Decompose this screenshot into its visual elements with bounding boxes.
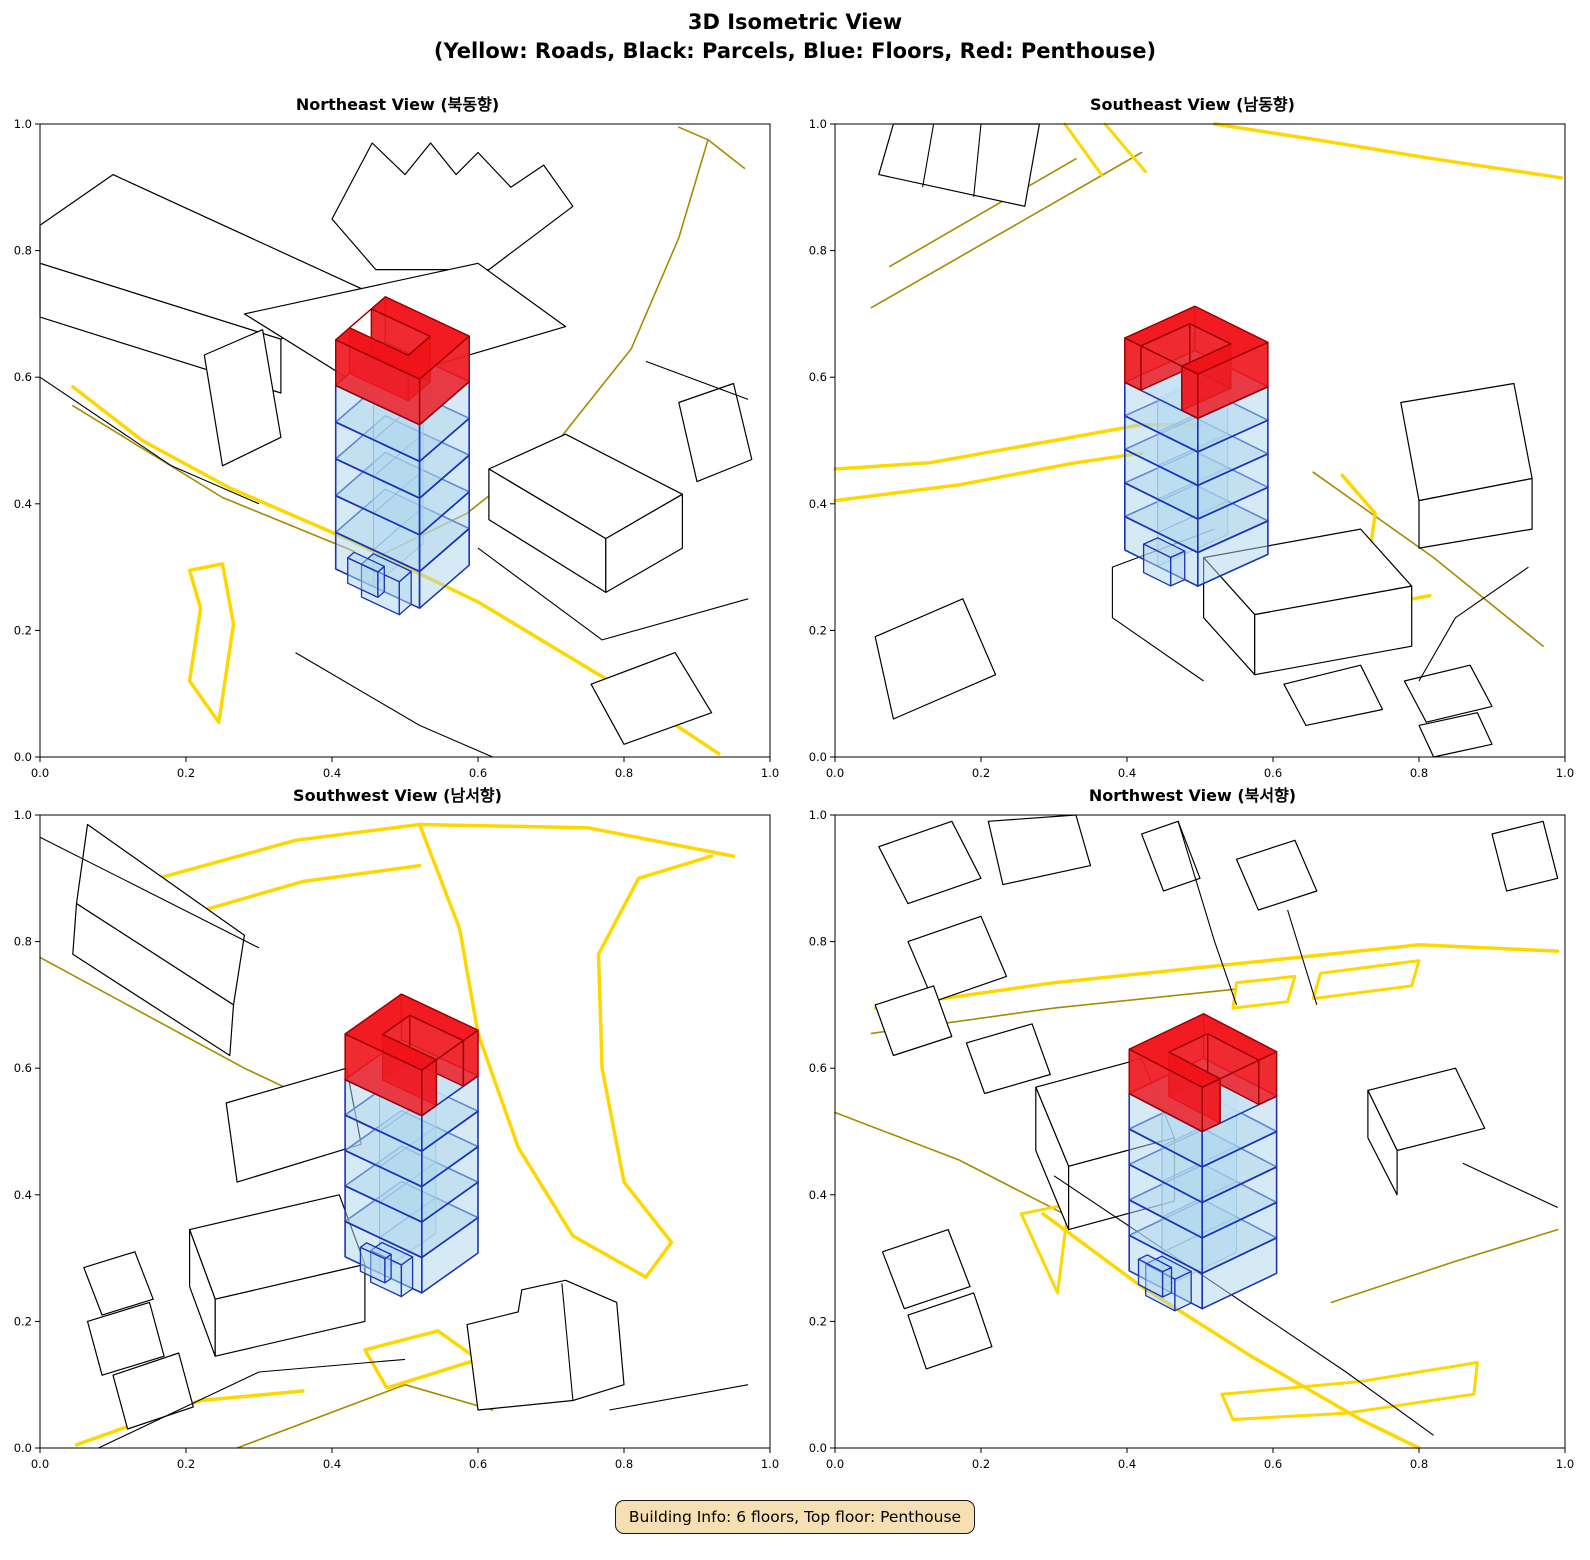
parcel-polygon bbox=[875, 599, 995, 719]
subplot-grid: Northeast View (북동향) 0.00.00.20.20.40.40… bbox=[0, 94, 1590, 1476]
x-tick-label: 0.4 bbox=[1118, 766, 1136, 780]
parcel-polygon bbox=[591, 653, 712, 745]
x-tick-label: 0.2 bbox=[972, 1457, 990, 1471]
y-tick-label: 1.0 bbox=[809, 808, 827, 822]
parcel-polygon bbox=[332, 143, 573, 270]
parcel-polygon bbox=[988, 815, 1090, 885]
caption-row: Building Info: 6 floors, Top floor: Pent… bbox=[0, 1500, 1590, 1534]
subplot-southwest-canvas: 0.00.00.20.20.40.40.60.60.80.81.01.0 bbox=[0, 807, 795, 1476]
x-tick-label: 0.8 bbox=[1410, 766, 1428, 780]
parcel-polygon bbox=[1142, 821, 1200, 891]
x-tick-label: 0.4 bbox=[1118, 1457, 1136, 1471]
x-tick-label: 0.4 bbox=[323, 766, 341, 780]
figure-title: 3D Isometric View (Yellow: Roads, Black:… bbox=[0, 0, 1590, 66]
y-tick-label: 0.8 bbox=[809, 935, 827, 949]
y-tick-label: 0.2 bbox=[809, 1314, 827, 1328]
x-tick-label: 0.6 bbox=[1264, 1457, 1282, 1471]
x-tick-label: 0.0 bbox=[826, 1457, 844, 1471]
subplot-northwest-canvas: 0.00.00.20.20.40.40.60.60.80.81.01.0 bbox=[795, 807, 1590, 1476]
parcel-boundary-line bbox=[1178, 821, 1236, 1005]
figure-title-line2: (Yellow: Roads, Black: Parcels, Blue: Fl… bbox=[0, 37, 1590, 66]
road-path bbox=[835, 453, 1142, 500]
parcel-polygon bbox=[883, 1230, 971, 1309]
y-tick-label: 0.4 bbox=[14, 497, 32, 511]
parcel-polygon bbox=[879, 124, 1040, 206]
y-tick-label: 0.0 bbox=[809, 1441, 827, 1455]
y-tick-label: 1.0 bbox=[14, 117, 32, 131]
parcel-boundary-line bbox=[1463, 1163, 1558, 1207]
y-tick-label: 1.0 bbox=[14, 808, 32, 822]
subplot-southwest-title: Southwest View (남서향) bbox=[0, 785, 795, 807]
x-tick-label: 0.8 bbox=[1410, 1457, 1428, 1471]
figure-title-line1: 3D Isometric View bbox=[0, 8, 1590, 37]
x-tick-label: 1.0 bbox=[1556, 1457, 1574, 1471]
x-tick-label: 0.2 bbox=[177, 766, 195, 780]
subplot-southeast: Southeast View (남동향) 0.00.00.20.20.40.40… bbox=[795, 94, 1590, 785]
subplot-northwest-title: Northwest View (북서향) bbox=[795, 785, 1590, 807]
road-path bbox=[1331, 1230, 1557, 1303]
subplot-northeast: Northeast View (북동향) 0.00.00.20.20.40.40… bbox=[0, 94, 795, 785]
y-tick-label: 0.8 bbox=[14, 935, 32, 949]
figure: 3D Isometric View (Yellow: Roads, Black:… bbox=[0, 0, 1590, 1560]
x-tick-label: 1.0 bbox=[1556, 766, 1574, 780]
y-tick-label: 0.4 bbox=[809, 497, 827, 511]
penthouse-wall bbox=[1182, 366, 1198, 418]
road-path bbox=[1065, 124, 1102, 175]
parcel-polygon bbox=[467, 1280, 624, 1410]
y-tick-label: 0.6 bbox=[809, 370, 827, 384]
road-path bbox=[365, 1331, 478, 1388]
parcel-polygon bbox=[966, 1024, 1050, 1094]
x-tick-label: 0.4 bbox=[323, 1457, 341, 1471]
y-tick-label: 0.0 bbox=[809, 750, 827, 764]
x-tick-label: 0.2 bbox=[177, 1457, 195, 1471]
x-tick-label: 0.6 bbox=[469, 1457, 487, 1471]
y-tick-label: 1.0 bbox=[809, 117, 827, 131]
parcel-boundary-line bbox=[609, 1385, 748, 1410]
x-tick-label: 0.8 bbox=[615, 766, 633, 780]
y-tick-label: 0.4 bbox=[14, 1188, 32, 1202]
subplot-southeast-canvas: 0.00.00.20.20.40.40.60.60.80.81.01.0 bbox=[795, 116, 1590, 785]
road-path bbox=[1313, 961, 1419, 999]
parcel-boundary-line bbox=[1419, 567, 1529, 681]
road-path bbox=[1105, 124, 1145, 172]
subplot-northeast-canvas: 0.00.00.20.20.40.40.60.60.80.81.01.0 bbox=[0, 116, 795, 785]
subplot-southwest: Southwest View (남서향) 0.00.00.20.20.40.40… bbox=[0, 785, 795, 1476]
parcel-polygon bbox=[226, 1068, 361, 1182]
parcel-polygon bbox=[679, 384, 752, 482]
parcel-boundary-line bbox=[296, 653, 493, 757]
y-tick-label: 0.2 bbox=[809, 623, 827, 637]
y-tick-label: 0.0 bbox=[14, 750, 32, 764]
penthouse-wall bbox=[1125, 338, 1141, 390]
x-tick-label: 0.0 bbox=[826, 766, 844, 780]
subplot-northeast-title: Northeast View (북동향) bbox=[0, 94, 795, 116]
road-path bbox=[1021, 1204, 1068, 1293]
y-tick-label: 0.0 bbox=[14, 1441, 32, 1455]
y-tick-label: 0.8 bbox=[14, 244, 32, 258]
parcel-polygon bbox=[879, 821, 981, 903]
y-tick-label: 0.2 bbox=[14, 623, 32, 637]
annex-face bbox=[1163, 1268, 1172, 1298]
subplot-northwest: Northwest View (북서향) 0.00.00.20.20.40.40… bbox=[795, 785, 1590, 1476]
y-tick-label: 0.4 bbox=[809, 1188, 827, 1202]
x-tick-label: 0.0 bbox=[31, 766, 49, 780]
parcel-polygon bbox=[1404, 665, 1492, 722]
y-tick-label: 0.8 bbox=[809, 244, 827, 258]
x-tick-label: 0.6 bbox=[1264, 766, 1282, 780]
subplot-southeast-title: Southeast View (남동향) bbox=[795, 94, 1590, 116]
parcel-polygon bbox=[908, 1293, 992, 1369]
road-path bbox=[1222, 1363, 1478, 1420]
road-path bbox=[1215, 124, 1562, 178]
parcel-polygon bbox=[1284, 665, 1383, 725]
x-tick-label: 1.0 bbox=[761, 1457, 779, 1471]
building-info-caption: Building Info: 6 floors, Top floor: Pent… bbox=[615, 1500, 975, 1534]
x-tick-label: 0.0 bbox=[31, 1457, 49, 1471]
y-tick-label: 0.6 bbox=[14, 1061, 32, 1075]
road-path bbox=[1233, 976, 1295, 1008]
y-tick-label: 0.6 bbox=[14, 370, 32, 384]
x-tick-label: 1.0 bbox=[761, 766, 779, 780]
road-path bbox=[679, 127, 745, 168]
x-tick-label: 0.8 bbox=[615, 1457, 633, 1471]
y-tick-label: 0.2 bbox=[14, 1314, 32, 1328]
parcel-polygon bbox=[1492, 821, 1558, 891]
parcel-boundary-line bbox=[646, 361, 748, 399]
road-path bbox=[190, 564, 234, 722]
x-tick-label: 0.6 bbox=[469, 766, 487, 780]
y-tick-label: 0.6 bbox=[809, 1061, 827, 1075]
x-tick-label: 0.2 bbox=[972, 766, 990, 780]
parcel-polygon bbox=[1237, 840, 1317, 910]
